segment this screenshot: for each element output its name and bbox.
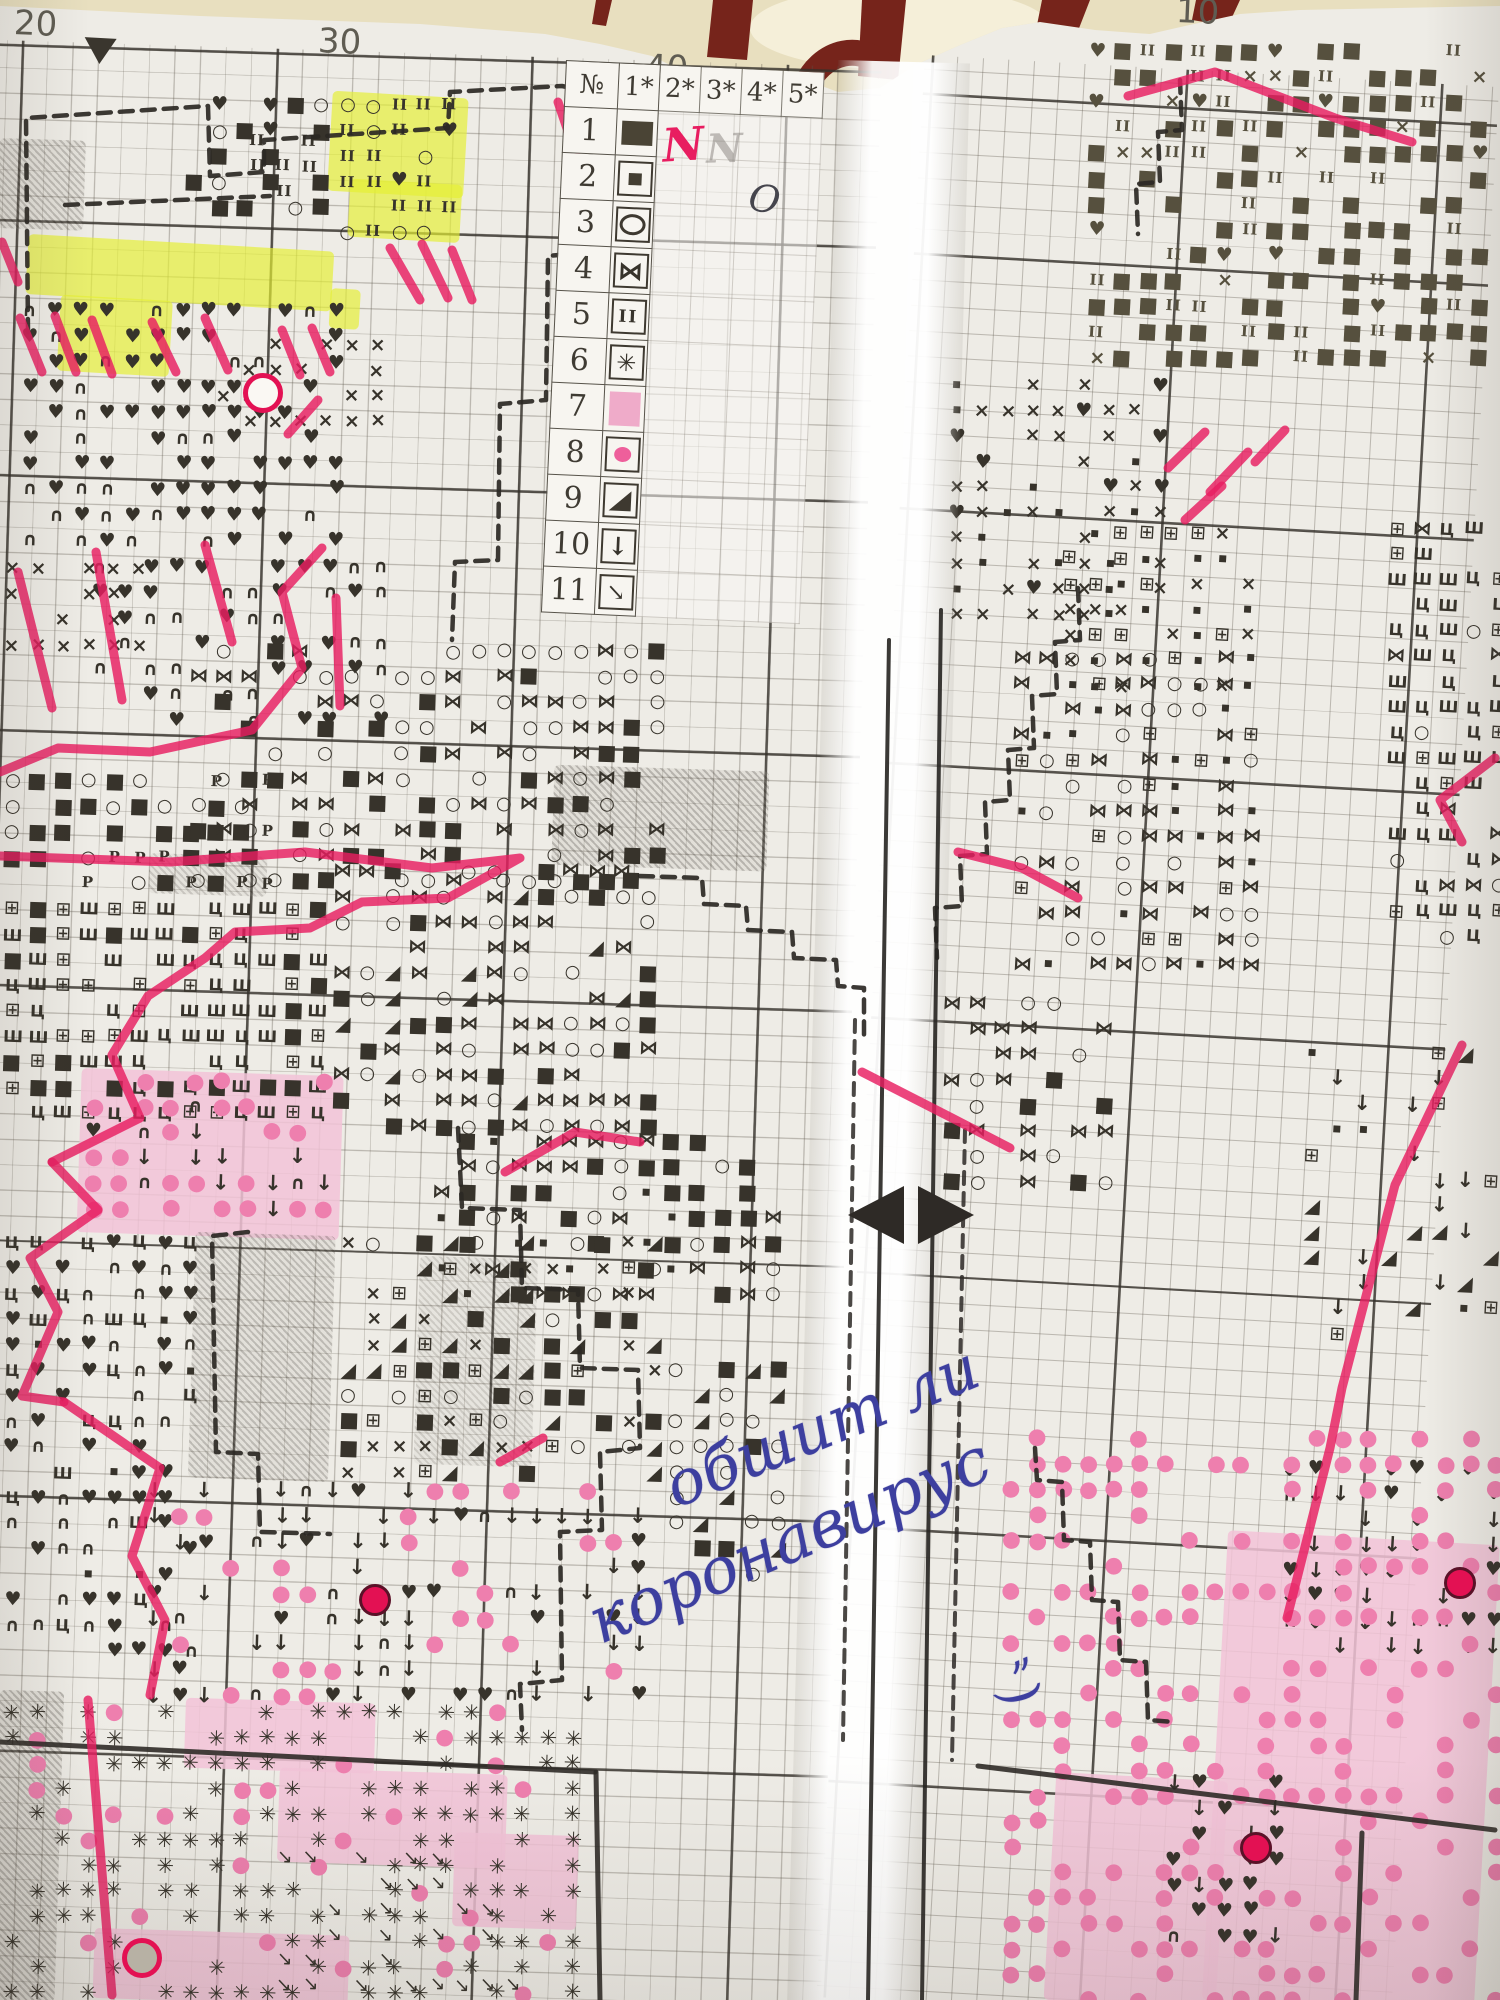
stitch-symbol-heart: ♥ (177, 1306, 203, 1332)
stitch-symbol-pdot: ● (1152, 1756, 1178, 1782)
stitch-symbol-circle: ○ (335, 91, 361, 117)
stitch-symbol-square: ■ (1091, 1092, 1117, 1118)
stitch-symbol-pdot: ● (1049, 1705, 1075, 1731)
stitch-symbol-circle: ○ (684, 1231, 710, 1257)
stitch-symbol-down: ↓ (293, 1503, 319, 1529)
legend-symbol-arrow-diag: ↘ (598, 574, 635, 611)
stitch-symbol-bars: II (1365, 166, 1391, 192)
legend-empty-cell (760, 530, 803, 578)
stitch-symbol-boxed: ⊞ (1384, 540, 1410, 566)
stitch-symbol-star: ✳ (407, 1802, 433, 1828)
stitch-symbol-boxed: ⊞ (280, 921, 306, 947)
legend-handwritten-N: N (706, 125, 744, 173)
stitch-symbol-square: ■ (364, 714, 390, 740)
stitch-symbol-pdot: ● (1279, 1961, 1305, 1987)
stitch-symbol-square: ■ (1261, 217, 1287, 243)
stitch-symbol-down: ↓ (142, 1503, 168, 1529)
stitch-symbol-cross: × (1019, 601, 1045, 627)
stitch-symbol-pdot: ● (498, 1631, 524, 1657)
stitch-symbol-down: ↓ (183, 1145, 209, 1171)
stitch-symbol-bars: II (411, 92, 437, 118)
stitch-symbol-star: ✳ (356, 1777, 382, 1803)
stitch-symbol-heart: ♥ (1020, 576, 1046, 602)
stitch-symbol-bowtie: ⋈ (533, 1087, 559, 1113)
stitch-symbol-pdot: ● (1484, 1782, 1500, 1808)
stitch-symbol-cross: × (77, 556, 103, 582)
stitch-symbol-down: ↓ (1303, 1557, 1329, 1583)
stitch-symbol-bars: II (386, 117, 412, 143)
stitch-symbol-circle: ○ (1034, 748, 1060, 774)
stitch-symbol-boxed: ⊞ (360, 1408, 386, 1434)
stitch-symbol-bowtie: ⋈ (559, 1113, 585, 1139)
stitch-symbol-star: ✳ (203, 1777, 229, 1803)
stitch-symbol-star: ✳ (509, 1828, 535, 1854)
stitch-symbol-pdot: ● (998, 1526, 1024, 1552)
stitch-symbol-bowtie: ⋈ (1009, 951, 1035, 977)
stitch-symbol-star: ✳ (0, 1701, 24, 1727)
stitch-symbol-boxed: ⊞ (565, 1358, 591, 1384)
stitch-symbol-sqsmall: ▪ (1187, 823, 1213, 849)
stitch-symbol-tri: ◢ (1376, 1244, 1402, 1270)
stitch-symbol-sqsmall: ▪ (1350, 1117, 1376, 1143)
stitch-symbol-arc: ∩ (50, 1535, 76, 1561)
stitch-symbol-boxed: ⊞ (1136, 772, 1162, 798)
stitch-symbol-star: ✳ (356, 1699, 382, 1725)
stitch-symbol-pdot: ● (51, 1802, 77, 1828)
stitch-symbol-square: ■ (483, 1063, 509, 1089)
legend-header-1*: 1* (617, 63, 660, 111)
stitch-symbol-pdot: ● (1482, 1986, 1500, 2000)
stitch-symbol-circle: ○ (543, 714, 569, 740)
stitch-symbol-circle: ○ (1066, 1042, 1092, 1068)
stitch-symbol-star: ✳ (179, 1879, 205, 1905)
stitch-symbol-cross: × (339, 333, 365, 359)
stitch-symbol-pdot: ● (1100, 1783, 1126, 1809)
stitch-symbol-boxed: ⊞ (1486, 566, 1500, 592)
stitch-symbol-square: ■ (236, 714, 262, 740)
stitch-symbol-circle: ○ (406, 1062, 432, 1088)
stitch-symbol-pdot: ● (1024, 1451, 1050, 1477)
stitch-symbol-heart: ♥ (0, 1587, 26, 1613)
legend-symbol-ellipse (614, 206, 651, 243)
stitch-symbol-square: ■ (207, 195, 233, 221)
stitch-symbol-square: ■ (1465, 115, 1491, 141)
stitch-symbol-bowtie: ⋈ (1015, 1118, 1041, 1144)
stitch-symbol-down: ↓ (260, 1196, 286, 1222)
stitch-symbol-cross: × (1121, 397, 1147, 423)
stitch-symbol-cross: × (1108, 597, 1134, 623)
stitch-symbol-bowtie: ⋈ (609, 1088, 635, 1114)
stitch-symbol-pdot: ● (1126, 1604, 1152, 1630)
stitch-symbol-heart: ♥ (525, 1605, 551, 1631)
stitch-symbol-circle: ○ (1033, 799, 1059, 825)
stitch-symbol-bowtie: ⋈ (457, 1062, 483, 1088)
stitch-symbol-tse: Ц (0, 1281, 24, 1307)
stitch-symbol-down: ↓ (260, 1171, 286, 1197)
stitch-symbol-heart: ♥ (69, 502, 95, 528)
stitch-symbol-bowtie: ⋈ (989, 1015, 1015, 1041)
stitch-symbol-sha: Ш (1384, 821, 1410, 847)
stitch-symbol-bowtie: ⋈ (236, 664, 262, 690)
stitch-symbol-pdot: ● (601, 1657, 627, 1683)
stitch-symbol-pdot: ● (229, 1803, 255, 1829)
stitch-symbol-circle: ○ (540, 1306, 566, 1332)
stitch-symbol-down: ↓ (1350, 1270, 1376, 1296)
stitch-symbol-cross: × (26, 556, 52, 582)
stitch-symbol-circle: ○ (618, 638, 644, 664)
stitch-symbol-heart: ♥ (268, 1606, 294, 1632)
stitch-symbol-bowtie: ⋈ (1486, 847, 1500, 873)
stitch-symbol-cross: × (411, 1307, 437, 1333)
stitch-symbol-tse: Ц (127, 1229, 153, 1255)
stitch-symbol-pdot: ● (1051, 1475, 1077, 1501)
stitch-symbol-star: ✳ (331, 1701, 357, 1727)
stitch-symbol-heart: ♥ (164, 707, 190, 733)
stitch-symbol-cross: × (1160, 621, 1186, 647)
stitch-symbol-arc: ∩ (101, 1333, 127, 1359)
stitch-symbol-square: ■ (1261, 115, 1287, 141)
stitch-symbol-pdot: ● (1381, 1553, 1407, 1579)
stitch-symbol-heart: ♥ (177, 1256, 203, 1282)
stitch-symbol-heart: ♥ (272, 527, 298, 553)
stitch-symbol-bars: II (1186, 294, 1212, 320)
stitch-symbol-square: ■ (1160, 267, 1186, 293)
stitch-symbol-down: ↓ (1452, 1218, 1478, 1244)
stitch-symbol-heart: ♥ (0, 1307, 26, 1333)
stitch-symbol-arc: ∩ (0, 1409, 24, 1435)
stitch-symbol-star: ✳ (51, 1904, 77, 1930)
stitch-symbol-bowtie: ⋈ (1135, 670, 1161, 696)
stitch-symbol-tse: Ц (1485, 744, 1500, 770)
stitch-symbol-pdot: ● (1177, 1858, 1203, 1884)
legend-header-№: № (564, 61, 619, 109)
stitch-symbol-arc: ∩ (17, 527, 43, 553)
stitch-symbol-cross: × (1237, 64, 1263, 90)
stitch-symbol-arc: ∩ (195, 426, 221, 452)
stitch-symbol-pdot: ● (998, 1578, 1024, 1604)
stitch-symbol-heart: ♥ (171, 375, 197, 401)
stitch-symbol-square: ■ (710, 1281, 736, 1307)
stitch-symbol-tse: Ц (50, 1613, 76, 1639)
stitch-symbol-se: ↘ (474, 1922, 500, 1948)
stitch-symbol-square: ■ (50, 1049, 76, 1075)
stitch-symbol-circle: ○ (1384, 847, 1410, 873)
stitch-symbol-circle: ○ (287, 841, 313, 867)
stitch-symbol-star: ✳ (561, 1726, 587, 1752)
stitch-symbol-down: ↓ (1301, 1532, 1327, 1558)
stitch-symbol-square: ■ (1390, 89, 1416, 115)
stitch-symbol-arc: ∩ (137, 656, 163, 682)
legend-empty-cell (687, 342, 730, 390)
stitch-symbol-square: ■ (338, 765, 364, 791)
stitch-symbol-circle: ○ (206, 169, 232, 195)
stitch-symbol-arc: ∩ (68, 401, 94, 427)
stitch-symbol-se: ↘ (272, 1947, 298, 1973)
stitch-symbol-pdot: ● (25, 1750, 51, 1776)
legend-empty-cell (767, 392, 810, 440)
stitch-symbol-boxed: ⊞ (1213, 875, 1239, 901)
stitch-symbol-pdot: ● (1229, 1935, 1255, 1961)
stitch-symbol-bowtie: ⋈ (456, 1011, 482, 1037)
legend-symbol-solid-rect (621, 117, 653, 149)
stitch-symbol-sha: Ш (304, 998, 330, 1024)
stitch-symbol-pdot: ● (1025, 1807, 1051, 1833)
stitch-symbol-pdot: ● (381, 1803, 407, 1829)
stitch-symbol-arc: ∩ (102, 1255, 128, 1281)
stitch-symbol-tri: ◢ (489, 1256, 515, 1282)
stitch-symbol-tse: Ц (75, 1231, 101, 1257)
stitch-symbol-sha: Ш (1383, 745, 1409, 771)
stitch-symbol-pdot: ● (1330, 1781, 1356, 1807)
stitch-symbol-tri: ◢ (689, 1407, 715, 1433)
stitch-symbol-arc: ∩ (43, 324, 69, 350)
stitch-symbol-pdot: ● (1407, 1527, 1433, 1553)
stitch-symbol-bowtie: ⋈ (532, 1012, 558, 1038)
stitch-symbol-square: ■ (412, 1229, 438, 1255)
stitch-symbol-square: ■ (1364, 141, 1390, 167)
stitch-symbol-square: ■ (1135, 64, 1161, 90)
stitch-symbol-heart: ♥ (151, 1333, 177, 1359)
stitch-symbol-pdot: ● (1049, 1578, 1075, 1604)
stitch-symbol-pdot: ● (1432, 1476, 1458, 1502)
stitch-symbol-circle: ○ (440, 792, 466, 818)
stitch-symbol-arc: ∩ (214, 580, 240, 606)
stitch-symbol-circle: ○ (1110, 850, 1136, 876)
stitch-symbol-pdot: ● (255, 1776, 281, 1802)
stitch-symbol-square: ■ (1465, 344, 1491, 370)
stitch-symbol-square: ■ (659, 1179, 685, 1205)
stitch-symbol-pdot: ● (158, 1169, 184, 1195)
stitch-symbol-bowtie: ⋈ (1460, 872, 1486, 898)
stitch-symbol-arc: ∩ (341, 555, 367, 581)
stitch-symbol-arc: ∩ (368, 631, 394, 657)
stitch-symbol-circle: ○ (415, 664, 441, 690)
legend-empty-cell (719, 528, 762, 576)
stitch-symbol-square: ■ (609, 1037, 635, 1063)
stitch-symbol-circle: ○ (513, 1384, 539, 1410)
stitch-symbol-pdot: ● (448, 1477, 474, 1503)
stitch-symbol-tse: Ц (1436, 669, 1462, 695)
stitch-symbol-se: ↘ (322, 1897, 348, 1923)
stitch-symbol-boxed: ⊞ (305, 1023, 331, 1049)
stitch-symbol-star: ✳ (305, 1751, 331, 1777)
stitch-symbol-cross: × (365, 383, 391, 409)
stitch-symbol-pdot: ● (1407, 1425, 1433, 1451)
stitch-symbol-se: ↘ (348, 1845, 374, 1871)
stitch-symbol-pdot: ● (218, 1682, 244, 1708)
stitch-symbol-bowtie: ⋈ (1162, 823, 1188, 849)
stitch-symbol-star: ✳ (433, 1751, 459, 1777)
stitch-symbol-pdot: ● (1280, 1706, 1306, 1732)
stitch-symbol-heart: ♥ (137, 580, 163, 606)
stitch-symbol-square: ■ (506, 1180, 532, 1206)
stitch-symbol-boxed: ⊞ (0, 896, 25, 922)
stitch-symbol-bowtie: ⋈ (313, 791, 339, 817)
stitch-symbol-pdot: ● (1049, 1934, 1075, 1960)
stitch-symbol-circle: ○ (607, 1179, 633, 1205)
stitch-symbol-cross: × (1071, 448, 1097, 474)
stitch-symbol-tri: ◢ (463, 1435, 489, 1461)
stitch-symbol-bowtie: ⋈ (406, 884, 432, 910)
stitch-symbol-square: ■ (1441, 243, 1467, 269)
stitch-symbol-bowtie: ⋈ (1059, 874, 1085, 900)
legend-row-number: 7 (550, 382, 605, 430)
stitch-symbol-sha: Ш (25, 946, 51, 972)
stitch-symbol-square: ■ (280, 1074, 306, 1100)
stitch-symbol-arc: ∩ (318, 579, 344, 605)
stitch-symbol-tri: ◢ (412, 1255, 438, 1281)
stitch-symbol-star: ✳ (458, 1777, 484, 1803)
stitch-symbol-bowtie: ⋈ (990, 1040, 1016, 1066)
stitch-symbol-square: ■ (356, 1037, 382, 1063)
stitch-symbol-square: ■ (313, 715, 339, 741)
stitch-symbol-square: ■ (1416, 292, 1442, 318)
stitch-symbol-circle: ○ (480, 1204, 506, 1230)
stitch-symbol-pdot: ● (1432, 1756, 1458, 1782)
stitch-symbol-star: ✳ (178, 1802, 204, 1828)
stitch-symbol-down: ↓ (1349, 1090, 1375, 1116)
legend-empty-cell (652, 203, 695, 251)
stitch-symbol-square: ■ (1416, 268, 1442, 294)
legend-empty-cell (646, 341, 689, 389)
stitch-symbol-pdot: ● (1305, 1706, 1331, 1732)
legend-empty-cell (642, 432, 685, 480)
legend-row-number: 6 (552, 336, 607, 384)
stitch-symbol-bowtie: ⋈ (338, 688, 364, 714)
stitch-symbol-heart: ♥ (43, 476, 69, 502)
stitch-symbol-pdot: ● (1357, 1883, 1383, 1909)
stitch-symbol-arc: ∩ (285, 1171, 311, 1197)
stitch-symbol-pdot: ● (1254, 1578, 1280, 1604)
stitch-symbol-boxed: ⊞ (1188, 748, 1214, 774)
ruler-label-30: 30 (317, 21, 362, 63)
stitch-symbol-square: ■ (582, 1153, 608, 1179)
stitch-symbol-heart: ♥ (145, 324, 171, 350)
stitch-symbol-square: ■ (102, 769, 128, 795)
stitch-symbol-tse: Ц (0, 1230, 25, 1256)
stitch-symbol-cross: × (489, 1435, 515, 1461)
stitch-symbol-square: ■ (1237, 139, 1263, 165)
stitch-symbol-pdot: ● (158, 1195, 184, 1221)
stitch-symbol-pdot: ● (1228, 1578, 1254, 1604)
stitch-symbol-circle: ○ (487, 1408, 513, 1434)
stitch-symbol-pdot: ● (1076, 1450, 1102, 1476)
stitch-symbol-square: ■ (1312, 37, 1338, 63)
stitch-symbol-sha: Ш (0, 922, 25, 948)
stitch-symbol-heart: ♥ (138, 681, 164, 707)
stitch-symbol-heart: ♥ (1378, 1480, 1404, 1506)
stitch-symbol-circle: ○ (1239, 926, 1265, 952)
stitch-symbol-heart: ♥ (1467, 141, 1493, 167)
stitch-symbol-pdot: ● (575, 1530, 601, 1556)
stitch-symbol-circle: ○ (335, 1382, 361, 1408)
stitch-symbol-circle: ○ (760, 1280, 786, 1306)
stitch-symbol-bowtie: ⋈ (211, 816, 237, 842)
stitch-symbol-boxed: ⊞ (280, 897, 306, 923)
stitch-symbol-bowtie: ⋈ (1015, 1143, 1041, 1169)
stitch-symbol-pdot: ● (1432, 1655, 1458, 1681)
stitch-symbol-circle: ○ (1186, 696, 1212, 722)
stitch-symbol-pdot: ● (1254, 1985, 1280, 2000)
stitch-symbol-sqsmall: ▪ (1184, 597, 1210, 623)
stitch-symbol-square: ■ (709, 1230, 735, 1256)
stitch-symbol-tri: ◢ (336, 1357, 362, 1383)
stitch-symbol-square: ■ (181, 169, 207, 195)
stitch-symbol-cross: × (615, 1229, 641, 1255)
stitch-symbol-circle: ○ (390, 766, 416, 792)
stitch-symbol-down: ↓ (1303, 1481, 1329, 1507)
stitch-symbol-star: ✳ (24, 1879, 50, 1905)
stitch-symbol-square: ■ (412, 1409, 438, 1435)
stitch-symbol-pdot: ● (1177, 1603, 1203, 1629)
stitch-symbol-circle: ○ (1238, 746, 1264, 772)
stitch-symbol-star: ✳ (178, 1904, 204, 1930)
stitch-symbol-square: ■ (1466, 294, 1492, 320)
stitch-symbol-bars: II (1185, 39, 1211, 65)
stitch-symbol-bowtie: ⋈ (1212, 824, 1238, 850)
stitch-symbol-circle: ○ (1136, 950, 1162, 976)
stitch-symbol-pdot: ● (1356, 1783, 1382, 1809)
stitch-symbol-sha: Ш (126, 921, 152, 947)
stitch-symbol-square: ■ (1237, 293, 1263, 319)
stitch-symbol-bowtie: ⋈ (455, 1153, 481, 1179)
stitch-symbol-bowtie: ⋈ (1238, 952, 1264, 978)
stitch-symbol-heart: ♥ (221, 502, 247, 528)
stitch-symbol-bowtie: ⋈ (736, 1230, 762, 1256)
stitch-symbol-bowtie: ⋈ (1085, 799, 1111, 825)
stitch-symbol-pdot: ● (1330, 1426, 1356, 1452)
stitch-symbol-heart: ♥ (1147, 373, 1173, 399)
stitch-symbol-pdot: ● (1024, 1960, 1050, 1986)
stitch-symbol-sqsmall: ▪ (1239, 798, 1265, 824)
stitch-symbol-arc: ∩ (342, 629, 368, 655)
stitch-symbol-arc: ∩ (17, 476, 43, 502)
stitch-symbol-bowtie: ⋈ (543, 690, 569, 716)
stitch-symbol-square: ■ (1135, 292, 1161, 318)
stitch-symbol-bowtie: ⋈ (210, 843, 236, 869)
stitch-symbol-square: ■ (643, 638, 669, 664)
stitch-symbol-star: ✳ (560, 1980, 586, 2000)
stitch-symbol-cross: × (26, 632, 52, 658)
stitch-symbol-sha: Ш (101, 1307, 127, 1333)
stitch-symbol-heart: ♥ (258, 93, 284, 119)
stitch-symbol-heart: ♥ (196, 297, 222, 323)
stitch-symbol-bowtie: ⋈ (482, 884, 508, 910)
stitch-symbol-cross: × (1235, 571, 1261, 597)
stitch-symbol-bowtie: ⋈ (508, 1036, 534, 1062)
stitch-symbol-heart: ♥ (25, 1357, 51, 1383)
stitch-symbol-cross: × (513, 1256, 539, 1282)
stitch-symbol-bowtie: ⋈ (609, 859, 635, 885)
stitch-symbol-cross: × (361, 1306, 387, 1332)
stitch-symbol-sha: Ш (306, 947, 332, 973)
stitch-symbol-pdot: ● (1279, 1475, 1305, 1501)
stitch-symbol-bars: II (387, 92, 413, 118)
stitch-symbol-star: ✳ (484, 1726, 510, 1752)
stitch-symbol-square: ■ (1364, 65, 1390, 91)
stitch-symbol-square: ■ (288, 867, 314, 893)
stitch-symbol-circle: ○ (582, 1204, 608, 1230)
stitch-symbol-tri: ◢ (1298, 1243, 1324, 1269)
stitch-symbol-heart: ♥ (247, 476, 273, 502)
stitch-symbol-pdot: ● (1050, 1858, 1076, 1884)
stitch-symbol-heart: ♥ (126, 1435, 152, 1461)
stitch-symbol-tse: Ц (1410, 821, 1436, 847)
stitch-symbol-pdot: ● (106, 1169, 132, 1195)
stitch-symbol-pdot: ● (127, 1903, 153, 1929)
stitch-symbol-sha: Ш (204, 998, 230, 1024)
stitch-symbol-tri: ◢ (513, 1357, 539, 1383)
